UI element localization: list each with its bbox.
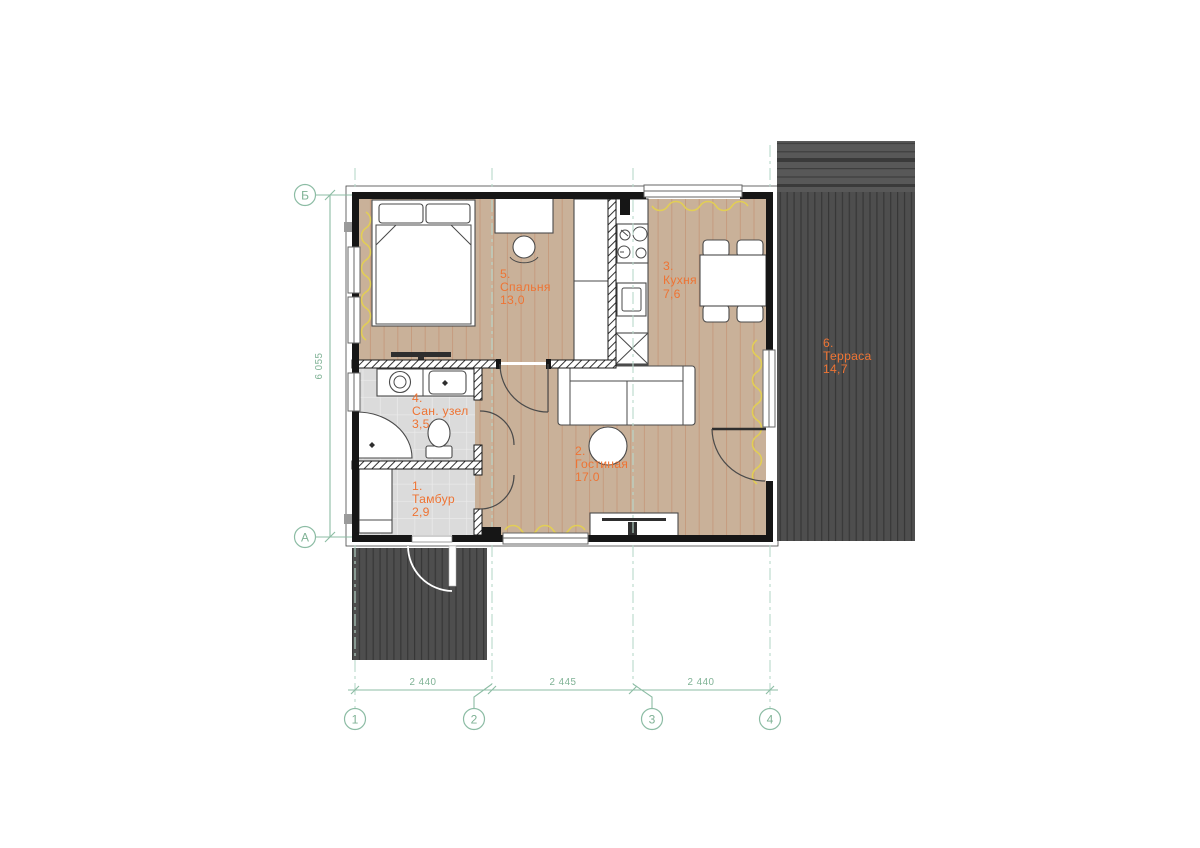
terrace-label-area: 14,7	[823, 362, 848, 376]
vestibule-closet	[359, 467, 392, 533]
vestibule-label-area: 2,9	[412, 505, 430, 519]
kitchen-label-number: 3.	[663, 259, 674, 273]
partition-bedroom	[352, 360, 500, 368]
wall-left	[352, 411, 359, 542]
floor-plan-canvas: 5. Спальня 13,0 3. Кухня 7,6 4. Сан. узе…	[0, 0, 1200, 848]
dining-chair	[703, 240, 729, 257]
dining-chair	[737, 240, 763, 257]
terrace-label-number: 6.	[823, 336, 834, 350]
wall-right	[766, 192, 773, 350]
wall-bottom	[352, 535, 412, 542]
kitchen-label-area: 7,6	[663, 287, 681, 301]
vestibule-label-name: Тамбур	[412, 492, 455, 506]
dining-chair	[737, 305, 763, 322]
bathroom-label-area: 3,5	[412, 417, 430, 431]
entrance-threshold	[412, 536, 452, 542]
bedroom-tv	[391, 352, 451, 357]
bedroom-label-number: 5.	[500, 267, 511, 281]
wall-top	[352, 192, 646, 199]
wall-right	[766, 481, 773, 542]
wall-left	[352, 343, 359, 373]
dining-chair	[703, 305, 729, 322]
partition-bedroom	[548, 360, 616, 368]
axis-label-1: 1	[352, 713, 359, 727]
vestibule-label-number: 1.	[412, 479, 423, 493]
terrace-step-shadow	[777, 184, 915, 187]
wall-bottom	[588, 535, 773, 542]
entrance-deck	[352, 548, 487, 660]
living-label-number: 2.	[575, 444, 586, 458]
floor-plan-drawing: 5. Спальня 13,0 3. Кухня 7,6 4. Сан. узе…	[0, 0, 1200, 848]
wardrobe	[574, 199, 610, 361]
downpipe	[344, 222, 352, 232]
left-height-dim: 6 055	[314, 352, 325, 379]
partition-bathroom-vestibule	[352, 461, 482, 469]
bathroom-label-number: 4.	[412, 391, 423, 405]
terrace-label-name: Терраса	[823, 349, 872, 363]
axis-label-2: 2	[471, 713, 478, 727]
dining-table	[700, 255, 766, 306]
dim-span-3-4: 2 440	[687, 677, 714, 688]
terrace-step-shadow	[777, 158, 915, 162]
partition-hall	[474, 509, 482, 535]
partition-kitchen	[608, 199, 616, 360]
partition-hall	[474, 469, 482, 475]
bedroom-label-name: Спальня	[500, 280, 551, 294]
living-label-area: 17.0	[575, 470, 600, 484]
partition-hall	[474, 368, 482, 400]
axis-label-4: 4	[767, 713, 774, 727]
vestibule-furniture	[359, 467, 392, 533]
bed-pillow	[426, 204, 470, 223]
axis-label-3: 3	[649, 713, 656, 727]
terrace-deck	[777, 141, 915, 541]
axis-label-b: Б	[301, 189, 309, 203]
axis-label-a: А	[301, 531, 309, 545]
bathroom-label-name: Сан. узел	[412, 404, 469, 418]
wall-left	[352, 293, 359, 297]
toilet-cistern	[426, 446, 452, 458]
partition-hall	[474, 445, 482, 461]
kitchen-label-name: Кухня	[663, 273, 697, 287]
dim-span-2-3: 2 445	[549, 677, 576, 688]
terrace-door-opening	[766, 430, 773, 481]
desk	[495, 198, 553, 233]
toilet-bowl	[428, 419, 450, 447]
entrance-door-leaf	[449, 546, 456, 586]
desk-chair	[513, 236, 535, 258]
bedroom-label-area: 13,0	[500, 293, 525, 307]
wall-left	[352, 192, 359, 247]
dim-span-1-2: 2 440	[409, 677, 436, 688]
wall-bottom	[452, 535, 505, 542]
washing-machine	[390, 372, 411, 393]
bed-pillow	[379, 204, 423, 223]
tv	[602, 518, 666, 521]
downpipe	[344, 514, 352, 524]
living-label-name: Гостиная	[575, 457, 628, 471]
